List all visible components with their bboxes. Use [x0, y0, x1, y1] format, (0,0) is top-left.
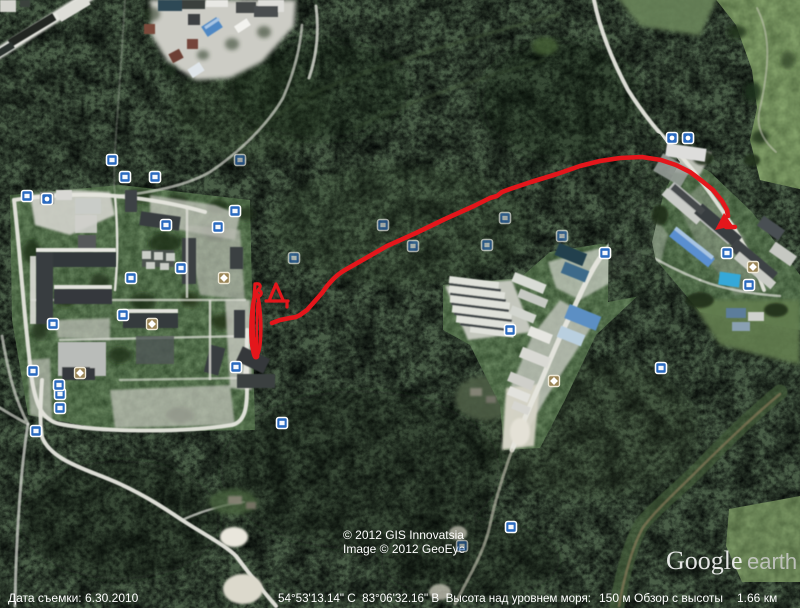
svg-text:1.66 км: 1.66 км [737, 591, 777, 605]
svg-text:Google: Google [666, 546, 743, 575]
svg-text:Дата съемки: 6.30.2010: Дата съемки: 6.30.2010 [8, 591, 139, 605]
svg-text:© 2012 GIS Innovatsia: © 2012 GIS Innovatsia [343, 528, 464, 542]
svg-text:earth: earth [747, 549, 797, 574]
svg-text:Image © 2012 GeoEye: Image © 2012 GeoEye [343, 542, 466, 556]
svg-text:Обзор с высоты: Обзор с высоты [634, 591, 723, 605]
svg-text:54°53'13.14" С 83°06'32.16" В: 54°53'13.14" С 83°06'32.16" В Высота над… [278, 591, 591, 605]
svg-text:150 м: 150 м [599, 591, 631, 605]
